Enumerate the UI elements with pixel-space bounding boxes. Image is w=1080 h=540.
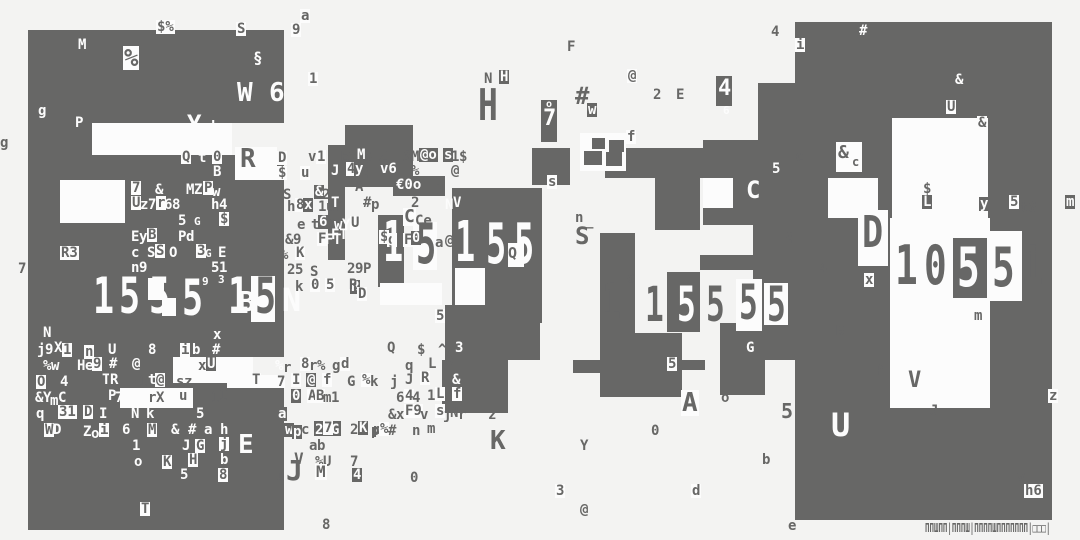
noise-glyph: i (180, 343, 190, 357)
noise-glyph: 5 (957, 241, 980, 295)
noise-glyph: 4 (60, 375, 68, 389)
noise-glyph: 9 (445, 355, 453, 369)
noise-glyph: Q (508, 246, 517, 261)
noise-glyph: i (795, 38, 805, 52)
noise-glyph: 8 (218, 468, 228, 482)
noise-glyph: % (280, 248, 288, 262)
noise-glyph: m (427, 422, 435, 436)
noise-glyph: 7 (18, 262, 26, 276)
noise-glyph: K (295, 246, 305, 260)
noise-glyph: b (192, 343, 200, 357)
noise-glyph: FT (331, 228, 348, 242)
noise-glyph: c (131, 246, 139, 260)
noise-glyph: G (195, 439, 205, 453)
noise-glyph: t (198, 151, 206, 165)
noise-glyph: f (452, 387, 462, 401)
noise-glyph: 6 (269, 80, 285, 106)
noise-glyph: Z (194, 183, 202, 197)
noise-glyph: z (488, 408, 496, 422)
noise-glyph: L (922, 195, 932, 209)
noise-glyph: # (858, 24, 868, 38)
noise-glyph: 1 (895, 239, 918, 293)
noise-glyph: P (363, 262, 371, 276)
noise-glyph: e (297, 218, 305, 232)
noise-glyph: J (331, 164, 339, 178)
noise-glyph: 2 (653, 88, 661, 102)
noise-glyph: Q (387, 341, 395, 355)
noise-glyph: G (194, 216, 201, 227)
noise-glyph: I (219, 389, 227, 403)
noise-glyph: x (213, 328, 221, 342)
noise-glyph: 7 (543, 108, 556, 130)
noise-glyph: 5 (706, 281, 725, 329)
noise-glyph: D (277, 151, 287, 165)
noise-block (703, 178, 733, 208)
noise-glyph: W (237, 80, 253, 106)
noise-glyph: D (357, 287, 367, 301)
noise-glyph: g (435, 181, 443, 195)
noise-glyph: T (251, 373, 261, 387)
noise-glyph: @o (419, 148, 438, 162)
noise-glyph: o (721, 391, 729, 405)
noise-glyph: N (43, 326, 51, 340)
noise-glyph: P (875, 364, 883, 378)
noise-glyph: R (109, 373, 119, 387)
noise-glyph: @ (627, 69, 637, 83)
noise-glyph: 4 (352, 468, 362, 482)
noise-glyph: 5 (119, 271, 140, 321)
noise-glyph: c (852, 156, 859, 168)
noise-glyph: B (213, 165, 221, 179)
noise-glyph: 1 (93, 271, 114, 321)
noise-glyph: a (204, 423, 212, 437)
noise-glyph: R (240, 146, 256, 172)
noise-glyph: J (182, 439, 190, 453)
noise-glyph: U (831, 409, 850, 441)
noise-glyph: 1 (62, 343, 72, 357)
noise-glyph: 5 (771, 162, 781, 176)
noise-glyph: S (155, 244, 165, 258)
noise-glyph: 3 (454, 341, 464, 355)
noise-glyph: 1 (1021, 239, 1044, 293)
noise-glyph: f (322, 373, 332, 387)
noise-glyph: J (286, 457, 303, 485)
noise-glyph: G (331, 423, 339, 437)
noise-glyph: 5 (767, 281, 786, 329)
noise-block (573, 360, 607, 373)
noise-glyph: u (276, 470, 284, 484)
noise-block (28, 30, 284, 123)
noise-glyph: 5 (781, 401, 793, 421)
noise-glyph: 6 (1028, 201, 1036, 215)
noise-glyph: b (220, 453, 228, 467)
noise-glyph: N (131, 407, 139, 421)
noise-glyph: u (178, 389, 188, 403)
noise-glyph: $ (219, 212, 229, 226)
noise-glyph: E (238, 432, 254, 458)
noise-glyph: D (83, 405, 93, 419)
noise-glyph: $ (417, 343, 425, 357)
noise-glyph: 31 (58, 405, 77, 419)
noise-glyph: M (147, 423, 157, 437)
noise-glyph: j (219, 437, 229, 451)
noise-glyph: 7 (115, 391, 123, 405)
noise-glyph: c (795, 150, 803, 164)
noise-glyph: @ (131, 357, 141, 371)
noise-glyph: J (405, 373, 413, 387)
noise-block (606, 152, 622, 166)
noise-glyph: 4 (718, 78, 731, 100)
noise-glyph: T (140, 502, 150, 516)
noise-glyph: 1 (331, 391, 339, 405)
noise-glyph: u (300, 166, 310, 180)
noise-glyph: 1 (316, 150, 326, 164)
noise-glyph: % (317, 359, 325, 373)
noise-glyph: 0 (310, 278, 320, 292)
noise-glyph: 6 (723, 105, 730, 116)
noise-glyph: v (1017, 470, 1025, 484)
noise-block (758, 83, 797, 143)
noise-glyph: T (331, 196, 339, 210)
noise-glyph: U (350, 216, 360, 230)
noise-glyph: x (303, 198, 313, 212)
noise-glyph: % (123, 46, 139, 70)
noise-glyph: Q (181, 150, 191, 164)
noise-block (584, 151, 602, 165)
noise-glyph: $ (459, 150, 467, 164)
noise-glyph: i (99, 423, 109, 437)
noise-glyph: 0 (924, 239, 947, 293)
noise-glyph: # (212, 343, 220, 357)
noise-glyph: k (295, 280, 303, 294)
noise-glyph: q (405, 359, 413, 373)
noise-glyph: 8 (322, 518, 330, 532)
noise-glyph: 6 (627, 273, 634, 285)
noise-glyph: y (979, 197, 989, 211)
noise-glyph: h6 (1024, 484, 1043, 498)
noise-glyph: @ (155, 373, 165, 387)
noise-glyph: H (478, 84, 498, 128)
noise-block (655, 178, 700, 230)
noise-glyph: o (134, 455, 142, 469)
noise-glyph: 4 (771, 25, 779, 39)
noise-glyph: & (452, 373, 460, 387)
noise-glyph: O (169, 246, 177, 260)
noise-glyph: f (626, 130, 636, 144)
noise-glyph: H (188, 453, 198, 467)
noise-glyph: 7 (277, 375, 285, 389)
noise-glyph: A (355, 180, 363, 194)
noise-glyph: 5 (255, 271, 276, 321)
glyph-noise-canvas: M%$%Sa9§W61ggPYkQt0RBD$uv17&MZPwUz7r68h4… (0, 0, 1080, 540)
noise-glyph: @ (445, 234, 453, 248)
noise-glyph: 1 (308, 72, 318, 86)
noise-glyph: 5 (416, 217, 436, 273)
noise-glyph: R (420, 371, 430, 385)
noise-glyph: # (388, 424, 396, 438)
noise-glyph: 1 (132, 439, 140, 453)
noise-glyph: 5 (677, 281, 696, 329)
noise-glyph: 1 (383, 215, 403, 271)
noise-glyph: 8 (172, 198, 180, 212)
noise-block (592, 138, 605, 149)
noise-glyph: I (291, 373, 301, 387)
noise-glyph: q (362, 164, 370, 178)
noise-glyph: J (930, 404, 938, 418)
noise-glyph: I (99, 407, 107, 421)
noise-glyph: 0 (291, 389, 301, 403)
noise-glyph: 5 (486, 217, 506, 273)
noise-glyph: M (78, 38, 86, 52)
noise-glyph: D (53, 423, 61, 437)
noise-glyph: A (681, 390, 699, 416)
noise-glyph: @ (306, 373, 316, 387)
noise-glyph: 0 (651, 424, 659, 438)
noise-glyph: K (490, 428, 506, 454)
noise-glyph: C (746, 178, 760, 202)
noise-glyph: 9 (92, 357, 102, 371)
noise-glyph: & (171, 423, 179, 437)
noise-glyph: k (211, 120, 219, 134)
noise-glyph: X (156, 391, 164, 405)
noise-glyph: 5 (149, 271, 170, 321)
noise-glyph: Y (187, 112, 201, 136)
noise-glyph: 7 (131, 181, 141, 195)
noise-glyph: C (403, 208, 416, 226)
noise-glyph: 4 (219, 198, 227, 212)
noise-glyph: 5 (295, 263, 303, 277)
noise-glyph: D (862, 211, 883, 255)
noise-glyph: 5 (514, 217, 534, 273)
noise-glyph: r (458, 408, 466, 422)
noise-glyph: 4 (819, 261, 827, 275)
noise-glyph: H (499, 70, 509, 84)
noise-glyph: 5 (435, 309, 445, 323)
noise-glyph: q (36, 407, 44, 421)
noise-glyph: S (575, 224, 589, 248)
noise-glyph: s (547, 175, 557, 189)
noise-glyph: 1 (455, 215, 475, 271)
noise-glyph: 5 (667, 357, 677, 371)
noise-block (892, 118, 988, 218)
noise-glyph: 5 (325, 278, 335, 292)
noise-glyph: j (390, 375, 398, 389)
noise-glyph: @ (580, 503, 588, 517)
noise-glyph: G (347, 375, 355, 389)
noise-glyph: z (184, 375, 192, 389)
noise-glyph: G (205, 248, 212, 259)
noise-glyph: c (301, 423, 309, 437)
noise-block (380, 283, 442, 305)
noise-glyph: 3 (218, 274, 225, 285)
noise-glyph: 5 (1009, 195, 1019, 209)
noise-glyph: g (38, 104, 46, 118)
noise-glyph: E (218, 246, 226, 260)
noise-glyph: 0 (410, 471, 418, 485)
noise-glyph: d (340, 357, 350, 371)
noise-glyph: & (977, 116, 987, 130)
noise-glyph: 8 (148, 343, 156, 357)
noise-glyph: U (108, 343, 116, 357)
noise-glyph: C (58, 391, 66, 405)
noise-glyph: Y (580, 439, 588, 453)
noise-glyph: & (955, 73, 963, 87)
noise-glyph: V (453, 196, 461, 210)
noise-block (609, 140, 624, 152)
noise-glyph: B (147, 228, 157, 242)
noise-glyph: L (435, 387, 445, 401)
noise-glyph: ППШПП|ПППШ|ППППШППППППП|□□□| (925, 522, 1050, 534)
noise-glyph: €0o (395, 178, 422, 192)
noise-glyph: 5 (739, 279, 758, 327)
noise-glyph: K (162, 455, 172, 469)
noise-glyph: 5 (196, 407, 204, 421)
noise-glyph: 5 (178, 214, 186, 228)
noise-glyph: $% (156, 20, 175, 34)
noise-glyph: 5 (992, 241, 1015, 295)
noise-glyph: G (746, 341, 754, 355)
noise-glyph: z (1048, 389, 1058, 403)
noise-glyph: w (51, 359, 59, 373)
noise-glyph: b (762, 453, 770, 467)
noise-glyph: S (236, 22, 246, 36)
noise-glyph: K (358, 421, 368, 435)
noise-glyph: a (277, 407, 287, 421)
noise-glyph: @ (451, 164, 459, 178)
noise-glyph: p (371, 198, 379, 212)
noise-glyph: q (786, 229, 794, 243)
noise-glyph: 9 (139, 261, 147, 275)
noise-glyph: m (974, 309, 982, 323)
noise-glyph: 0 (212, 150, 222, 164)
noise-glyph: x (864, 273, 874, 287)
noise-glyph: a (300, 9, 310, 23)
noise-glyph: R3 (60, 246, 79, 260)
noise-glyph: F (567, 40, 575, 54)
noise-glyph: g (0, 136, 8, 150)
noise-glyph: % (411, 164, 419, 178)
noise-block (60, 180, 125, 223)
noise-glyph: n (412, 424, 420, 438)
noise-glyph: L (428, 357, 436, 371)
noise-glyph: # (188, 423, 196, 437)
noise-glyph: k (146, 407, 154, 421)
noise-glyph: e (788, 519, 796, 533)
noise-glyph: m (1065, 195, 1075, 209)
noise-glyph: $ (364, 150, 372, 164)
noise-glyph: M (315, 464, 327, 480)
noise-glyph: v (420, 408, 428, 422)
noise-glyph: O (36, 375, 46, 389)
noise-glyph: § (253, 50, 263, 66)
noise-glyph: 5 (180, 468, 188, 482)
noise-glyph: B (238, 288, 255, 316)
noise-glyph: 6 (122, 423, 130, 437)
noise-glyph: $ (277, 166, 287, 180)
noise-glyph: 1 (645, 281, 664, 329)
noise-glyph: E (676, 88, 684, 102)
noise-glyph: a (435, 236, 443, 250)
noise-glyph: d (691, 484, 701, 498)
noise-glyph: h (220, 423, 228, 437)
noise-glyph: U (946, 100, 956, 114)
noise-glyph: V (908, 370, 921, 392)
noise-glyph: U (206, 357, 216, 371)
noise-glyph: v6 (379, 162, 398, 176)
noise-glyph: b (317, 439, 325, 453)
noise-glyph: & (838, 144, 849, 162)
noise-glyph: # (108, 357, 118, 371)
noise-glyph: 9 (291, 23, 301, 37)
noise-glyph: 5 (182, 273, 203, 323)
noise-glyph: w (587, 103, 597, 117)
noise-glyph: k (370, 375, 378, 389)
noise-glyph: B (836, 324, 844, 338)
noise-glyph: 1 (602, 278, 621, 326)
noise-glyph: d (186, 230, 194, 244)
noise-glyph: P (75, 116, 83, 130)
noise-glyph: 3 (555, 484, 565, 498)
